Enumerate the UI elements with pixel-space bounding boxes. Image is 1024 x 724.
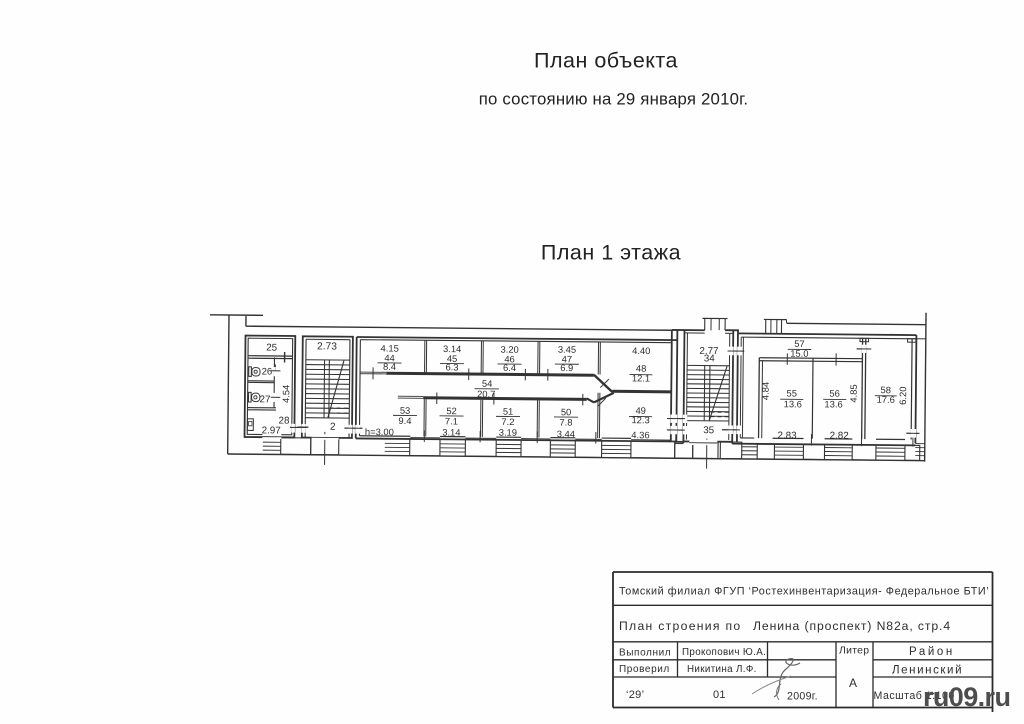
svg-text:13.6: 13.6: [784, 398, 802, 409]
svg-text:6.4: 6.4: [503, 362, 516, 373]
svg-text:26: 26: [262, 367, 273, 378]
svg-text:‘29’: ‘29’: [626, 689, 644, 701]
svg-text:2.82: 2.82: [830, 430, 849, 441]
svg-text:55: 55: [787, 387, 798, 398]
svg-text:4.40: 4.40: [632, 345, 650, 356]
svg-text:по состоянию на 29 января 2010: по состоянию на 29 января 2010г.: [479, 90, 749, 109]
svg-text:6.9: 6.9: [560, 362, 573, 373]
svg-text:Литер: Литер: [839, 646, 869, 657]
svg-text:01: 01: [713, 689, 726, 701]
svg-text:h=3.00: h=3.00: [365, 426, 394, 437]
svg-text:План объекта: План объекта: [534, 49, 678, 73]
svg-text:25: 25: [266, 343, 278, 354]
svg-text:12.3: 12.3: [631, 414, 649, 425]
svg-text:2: 2: [330, 422, 336, 433]
svg-text:6.3: 6.3: [445, 361, 458, 372]
svg-text:7.1: 7.1: [445, 415, 458, 426]
svg-text:Никитина Л.Ф.: Никитина Л.Ф.: [687, 664, 757, 675]
svg-text:Район: Район: [909, 646, 955, 658]
svg-text:8.4: 8.4: [383, 361, 396, 372]
svg-text:7.2: 7.2: [501, 416, 514, 427]
svg-text:План 1 этажа: План 1 этажа: [541, 241, 681, 265]
svg-text:4.54: 4.54: [280, 385, 291, 403]
svg-text:17.6: 17.6: [877, 394, 895, 405]
svg-text:3.44: 3.44: [557, 428, 575, 439]
svg-text:6.20: 6.20: [897, 386, 908, 404]
svg-text:13.6: 13.6: [824, 398, 842, 409]
svg-text:3.19: 3.19: [499, 427, 517, 438]
svg-text:15.0: 15.0: [790, 348, 808, 359]
svg-text:54: 54: [482, 378, 493, 389]
svg-text:9.4: 9.4: [398, 415, 411, 426]
svg-text:2.83: 2.83: [777, 430, 797, 441]
svg-text:Прокопович Ю.А.: Прокопович Ю.А.: [682, 647, 766, 658]
svg-text:3.14: 3.14: [442, 426, 460, 437]
svg-text:Ленинский: Ленинский: [892, 665, 963, 677]
svg-text:Выполнил: Выполнил: [619, 648, 671, 659]
svg-text:56: 56: [829, 388, 840, 399]
svg-text:2009г.: 2009г.: [787, 691, 818, 703]
svg-text:34: 34: [704, 353, 716, 364]
svg-text:35: 35: [703, 425, 715, 436]
svg-text:План строения по: План строения по: [619, 619, 741, 633]
svg-text:12.1: 12.1: [632, 372, 650, 383]
svg-text:2.73: 2.73: [317, 341, 337, 352]
svg-text:4.84: 4.84: [760, 382, 771, 400]
svg-text:7.8: 7.8: [559, 416, 572, 427]
svg-text:Ленина (проспект) N82а, стр.4: Ленина (проспект) N82а, стр.4: [753, 619, 951, 633]
svg-text:20.7: 20.7: [477, 388, 495, 399]
svg-text:ru09.ru: ru09.ru: [923, 682, 1010, 712]
svg-text:Томский филиал ФГУП ‘Ростехинв: Томский филиал ФГУП ‘Ростехинвентаризаци…: [619, 586, 989, 598]
svg-text:А: А: [849, 676, 858, 690]
svg-text:Проверил: Проверил: [619, 664, 670, 675]
svg-text:27: 27: [259, 394, 270, 405]
svg-text:4.85: 4.85: [848, 384, 859, 402]
svg-text:4.36: 4.36: [631, 429, 649, 440]
